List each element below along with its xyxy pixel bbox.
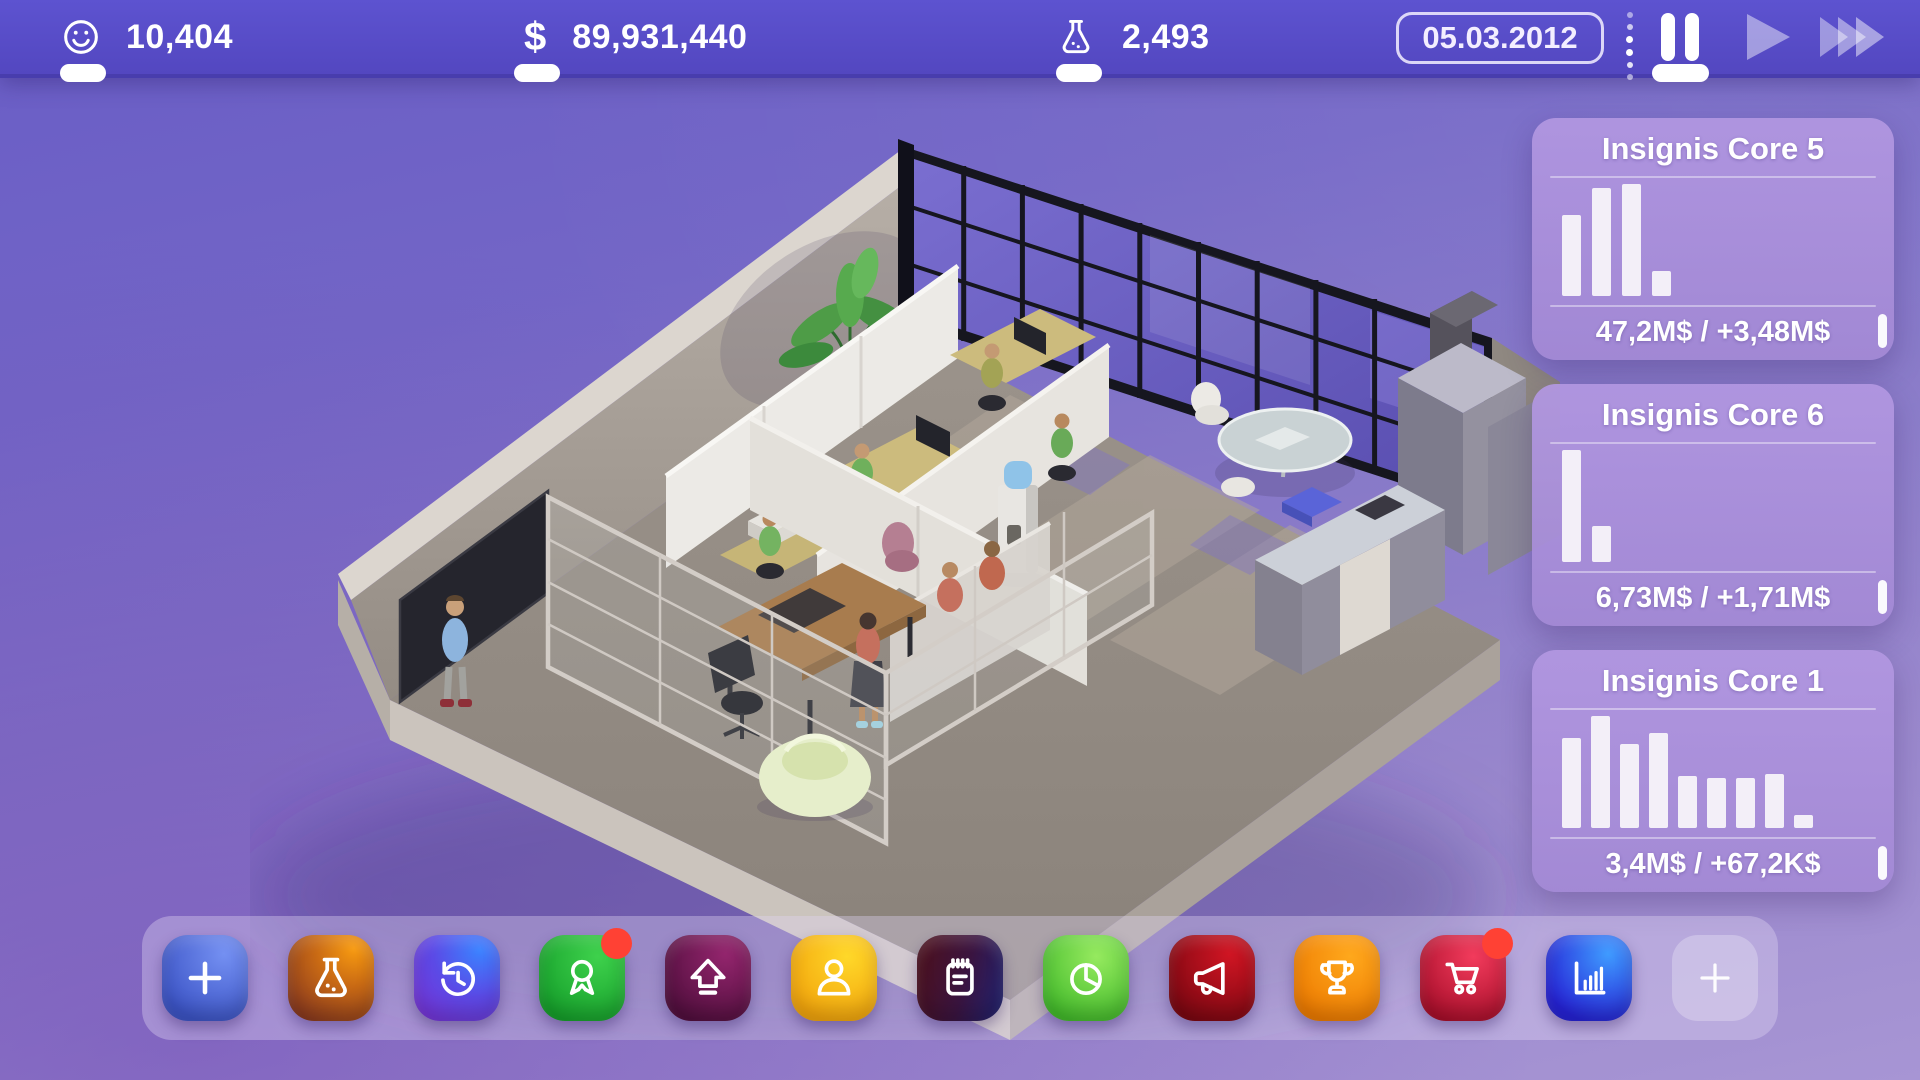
shop-button[interactable]	[1420, 935, 1506, 1021]
up-arrow-icon	[682, 952, 734, 1004]
award-ribbon-icon	[556, 952, 608, 1004]
chart-bar	[1794, 815, 1813, 828]
staff-button[interactable]	[791, 935, 877, 1021]
scrollbar-thumb[interactable]	[1878, 580, 1887, 614]
megaphone-icon	[1186, 952, 1238, 1004]
research-stat[interactable]: 2,493	[1054, 0, 1210, 74]
money-value: 89,931,440	[572, 18, 747, 57]
chart-bar	[1736, 778, 1755, 828]
achievements-button[interactable]	[539, 935, 625, 1021]
smiley-icon	[58, 14, 104, 60]
chart-bar	[1592, 188, 1611, 296]
trophies-button[interactable]	[1294, 935, 1380, 1021]
bar-chart-icon	[1563, 952, 1615, 1004]
pause-button[interactable]	[1658, 0, 1702, 74]
chart-bar	[1592, 526, 1611, 562]
date-display[interactable]: 05.03.2012	[1396, 12, 1604, 64]
chart-bar	[1591, 716, 1610, 828]
product-card[interactable]: Insignis Core 5 47,2M$ / +3,48M$	[1532, 118, 1894, 360]
product-revenue: 3,4M$ / +67,2K$	[1532, 848, 1894, 881]
chart-bar	[1620, 744, 1639, 828]
upgrade-button[interactable]	[665, 935, 751, 1021]
statistics-button[interactable]	[1546, 935, 1632, 1021]
add-button[interactable]	[162, 935, 248, 1021]
flask-icon	[305, 952, 357, 1004]
chart-bar	[1622, 184, 1641, 296]
product-card[interactable]: Insignis Core 6 6,73M$ / +1,71M$	[1532, 384, 1894, 626]
tasks-button[interactable]	[917, 935, 1003, 1021]
divider	[1550, 571, 1876, 573]
dollar-icon: $	[524, 0, 546, 74]
happiness-value: 10,404	[126, 18, 233, 57]
chart-bar	[1652, 271, 1671, 296]
product-revenue: 6,73M$ / +1,71M$	[1532, 582, 1894, 615]
sales-chart	[1562, 444, 1864, 562]
history-button[interactable]	[414, 935, 500, 1021]
play-button[interactable]	[1742, 0, 1794, 74]
product-name: Insignis Core 1	[1532, 650, 1894, 699]
notification-badge	[1482, 928, 1513, 959]
research-button[interactable]	[288, 935, 374, 1021]
chart-bar	[1649, 733, 1668, 828]
add-slot-button[interactable]	[1672, 935, 1758, 1021]
flask-icon	[1054, 15, 1098, 59]
notepad-icon	[934, 952, 986, 1004]
sales-chart	[1562, 710, 1864, 828]
plus-icon	[179, 952, 231, 1004]
speed-divider-dots	[1626, 12, 1633, 80]
office-scene[interactable]	[250, 55, 1560, 1040]
pause-icon	[1658, 9, 1702, 65]
chart-bar	[1562, 215, 1581, 296]
product-card[interactable]: Insignis Core 1 3,4M$ / +67,2K$	[1532, 650, 1894, 892]
product-name: Insignis Core 5	[1532, 118, 1894, 167]
scrollbar-thumb[interactable]	[1878, 314, 1887, 348]
fast-forward-icon	[1818, 11, 1896, 63]
product-name: Insignis Core 6	[1532, 384, 1894, 433]
happiness-stat[interactable]: 10,404	[58, 0, 233, 74]
fast-forward-button[interactable]	[1818, 0, 1896, 74]
bottom-toolbar	[142, 916, 1778, 1040]
divider	[1550, 837, 1876, 839]
pie-chart-icon	[1060, 952, 1112, 1004]
research-value: 2,493	[1122, 18, 1210, 57]
chart-bar	[1707, 778, 1726, 828]
date-value: 05.03.2012	[1422, 20, 1577, 56]
notification-badge	[601, 928, 632, 959]
marketing-button[interactable]	[1169, 935, 1255, 1021]
chart-bar	[1765, 774, 1784, 828]
play-icon	[1742, 9, 1794, 65]
money-stat[interactable]: $ 89,931,440	[524, 0, 747, 74]
divider	[1550, 305, 1876, 307]
sales-chart	[1562, 178, 1864, 296]
plus-icon	[1689, 952, 1741, 1004]
scrollbar-thumb[interactable]	[1878, 846, 1887, 880]
cart-icon	[1437, 952, 1489, 1004]
chart-bar	[1562, 450, 1581, 562]
trophy-icon	[1311, 952, 1363, 1004]
product-revenue: 47,2M$ / +3,48M$	[1532, 316, 1894, 349]
person-icon	[808, 952, 860, 1004]
chart-bar	[1562, 738, 1581, 828]
history-clock-icon	[431, 952, 483, 1004]
reports-button[interactable]	[1043, 935, 1129, 1021]
chart-bar	[1678, 776, 1697, 828]
